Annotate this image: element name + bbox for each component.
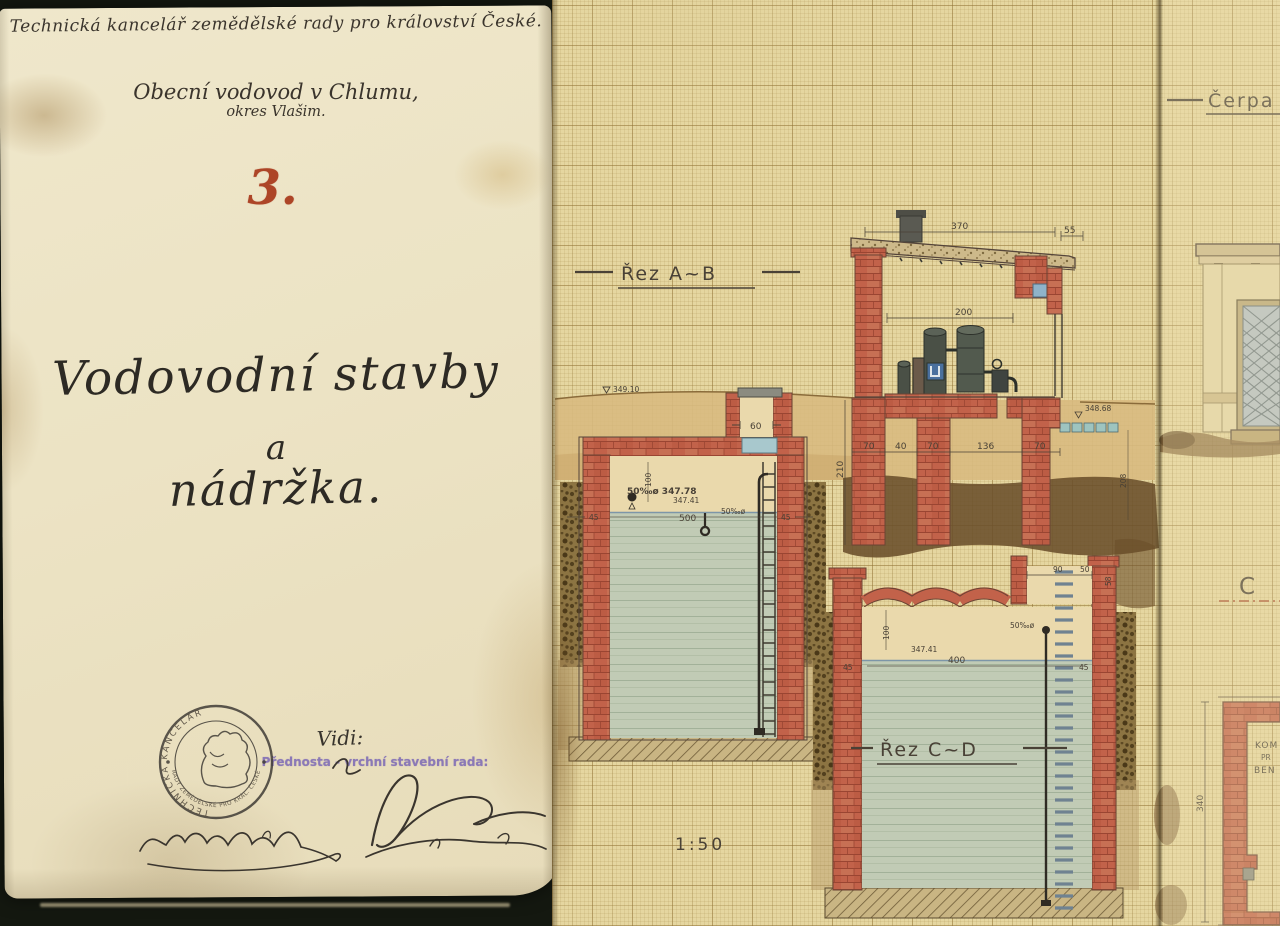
tank-wall-right — [1092, 566, 1116, 890]
dim-label: 90 — [1053, 565, 1063, 574]
dim-label: 348.68 — [1085, 404, 1111, 413]
earth-hatch-right — [1115, 612, 1136, 790]
tank-wall-left — [583, 455, 610, 740]
dim-label: 40 — [895, 442, 907, 452]
elevation-mark-ground: 349.10 — [603, 385, 639, 394]
official-seal: TECHNICKÁ KANCELÁŘ RADY ZEMĚDĚLSKÉ PRO K… — [158, 706, 272, 818]
dim-label: 200 — [955, 308, 972, 318]
signature-chief — [333, 759, 546, 857]
tank-floor — [825, 888, 1123, 918]
technical-drawing: 60 50‰ø 347.78 347.41 500 50‰ø 45 45 100… — [555, 0, 1280, 926]
tank-air-space — [862, 607, 1092, 661]
chimney — [900, 216, 922, 242]
dim-label: 210 — [836, 461, 846, 478]
dim-label: 349.10 — [613, 385, 639, 394]
chamber-text-line1: KOM — [1255, 741, 1278, 751]
cover-ink-layer: TECHNICKÁ KANCELÁŘ RADY ZEMĚDĚLSKÉ PRO K… — [0, 0, 556, 926]
chamber-text-line3: BEN — [1254, 766, 1276, 776]
earth-hatch-left — [813, 612, 834, 790]
pump-station-label: Čerpa — [1208, 88, 1274, 112]
foundation-pier — [852, 398, 885, 545]
dim-label: 60 — [750, 422, 762, 432]
dim-label: 340 — [1196, 795, 1206, 812]
vault-arches — [864, 588, 1008, 607]
tank-floor — [569, 737, 817, 761]
dim-label: 45 — [1079, 663, 1089, 672]
dim-label: 208 — [1119, 473, 1128, 488]
dim-label: 50‰ø — [721, 507, 746, 516]
foot-valve — [754, 728, 765, 735]
section-c-marker: C — [1239, 574, 1255, 600]
seal-lion-emblem — [201, 731, 250, 787]
dim-label: 400 — [948, 656, 965, 666]
dim-label: 70 — [1034, 442, 1046, 452]
dim-label: 45 — [589, 513, 599, 522]
pump-station-elevation — [1159, 244, 1280, 458]
dim-label: 500 — [679, 514, 696, 524]
dim-label: 100 — [644, 472, 653, 487]
dim-label: 347.41 — [673, 496, 699, 505]
reservoir-section-ab: 60 50‰ø 347.78 347.41 500 50‰ø 45 45 100 — [558, 388, 828, 761]
tank-wall-left — [833, 578, 862, 890]
dim-label: 50 — [1080, 565, 1090, 574]
pump-house-wall-left — [855, 255, 882, 398]
lattice-window — [1237, 300, 1280, 432]
dim-label: 45 — [781, 513, 791, 522]
shaft-cover — [738, 388, 782, 397]
chamber-walls — [1223, 702, 1280, 925]
cornice — [1196, 244, 1280, 256]
chamber-plan: 340 KOM PR BEN — [1154, 697, 1280, 925]
foundation-pier — [917, 418, 950, 545]
section-ab-label: Řez A~B — [621, 262, 717, 285]
dim-label: 136 — [977, 442, 994, 452]
dim-label: 55 — [1064, 226, 1075, 236]
dim-label: 50‰ø — [1010, 621, 1035, 630]
dim-label: 100 — [882, 625, 891, 640]
dim-label: 70 — [927, 442, 939, 452]
reservoir-section-cd: 400 347.41 50‰ø 90 50 58 45 45 100 — [811, 556, 1139, 918]
dim-label: 370 — [951, 222, 968, 232]
section-cd-label: Řez C~D — [880, 738, 978, 761]
pump-machinery — [898, 326, 1016, 395]
signature-engineer — [140, 831, 340, 870]
blue-lintel — [742, 438, 777, 453]
tile-row — [1060, 423, 1118, 432]
tank-water — [610, 512, 777, 738]
dim-label: 70 — [863, 442, 875, 452]
dim-label: 58 — [1104, 576, 1113, 586]
cover-page: Technická kancelář zemědělské rady pro k… — [0, 0, 556, 926]
tank-water — [862, 660, 1092, 888]
dim-label: 45 — [843, 663, 853, 672]
dim-label: 347.41 — [911, 645, 937, 654]
chamber-text-line2: PR — [1261, 753, 1271, 762]
scale-label: 1:50 — [675, 835, 725, 855]
earth-hatch-left — [560, 482, 584, 667]
shaft-wall — [1011, 556, 1027, 604]
tank-wall-right — [777, 455, 804, 740]
